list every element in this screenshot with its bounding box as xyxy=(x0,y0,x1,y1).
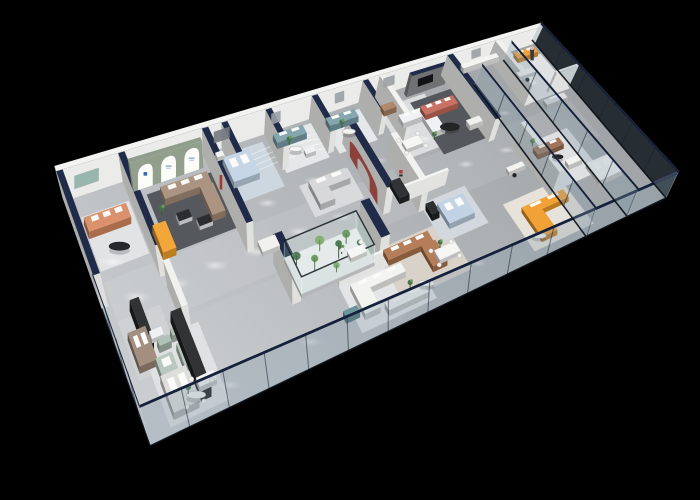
arch-text-line xyxy=(189,158,195,159)
chair-white xyxy=(437,263,441,267)
chair-white xyxy=(458,253,462,257)
plant-foliage-top xyxy=(289,136,292,139)
floor-light-glow xyxy=(457,160,476,168)
plant-foliage-top xyxy=(342,119,345,122)
chair-white xyxy=(416,131,420,135)
booth2-round-table xyxy=(342,129,355,134)
floor-light-glow xyxy=(202,260,228,271)
arch-text-line xyxy=(166,166,172,167)
coral-oval-table xyxy=(440,123,459,131)
arch-logo-blue xyxy=(144,172,148,176)
chair-white xyxy=(340,248,344,252)
entry-partition-face-front xyxy=(246,221,254,253)
chair-white xyxy=(449,240,453,244)
plant-foliage-top xyxy=(161,205,164,208)
chair-white xyxy=(189,377,194,382)
plant-foliage-top xyxy=(440,239,443,242)
chair-white xyxy=(396,138,400,142)
showroom-render xyxy=(0,0,700,500)
person-figure xyxy=(530,49,534,60)
floor-light-glow xyxy=(257,199,278,208)
chair-white xyxy=(359,240,363,244)
chair-white xyxy=(404,151,408,155)
plant-foliage-top xyxy=(434,131,437,134)
booth1-round-table xyxy=(289,146,302,151)
plant-foliage-top xyxy=(410,279,413,282)
scene-svg xyxy=(0,0,700,500)
chair-white xyxy=(424,144,428,148)
floor-light-glow xyxy=(99,256,127,268)
floor-light-glow xyxy=(498,147,515,154)
logo-mark-dark xyxy=(399,174,402,176)
chair-black xyxy=(513,173,517,177)
red-slot-accent xyxy=(220,175,223,189)
room1-oval-table xyxy=(109,242,130,250)
chair-white xyxy=(429,249,433,253)
arch-text-line-2 xyxy=(166,168,170,169)
arch-text-line-2 xyxy=(190,160,194,161)
logo-mark-red xyxy=(399,170,402,173)
person-head xyxy=(530,46,534,50)
